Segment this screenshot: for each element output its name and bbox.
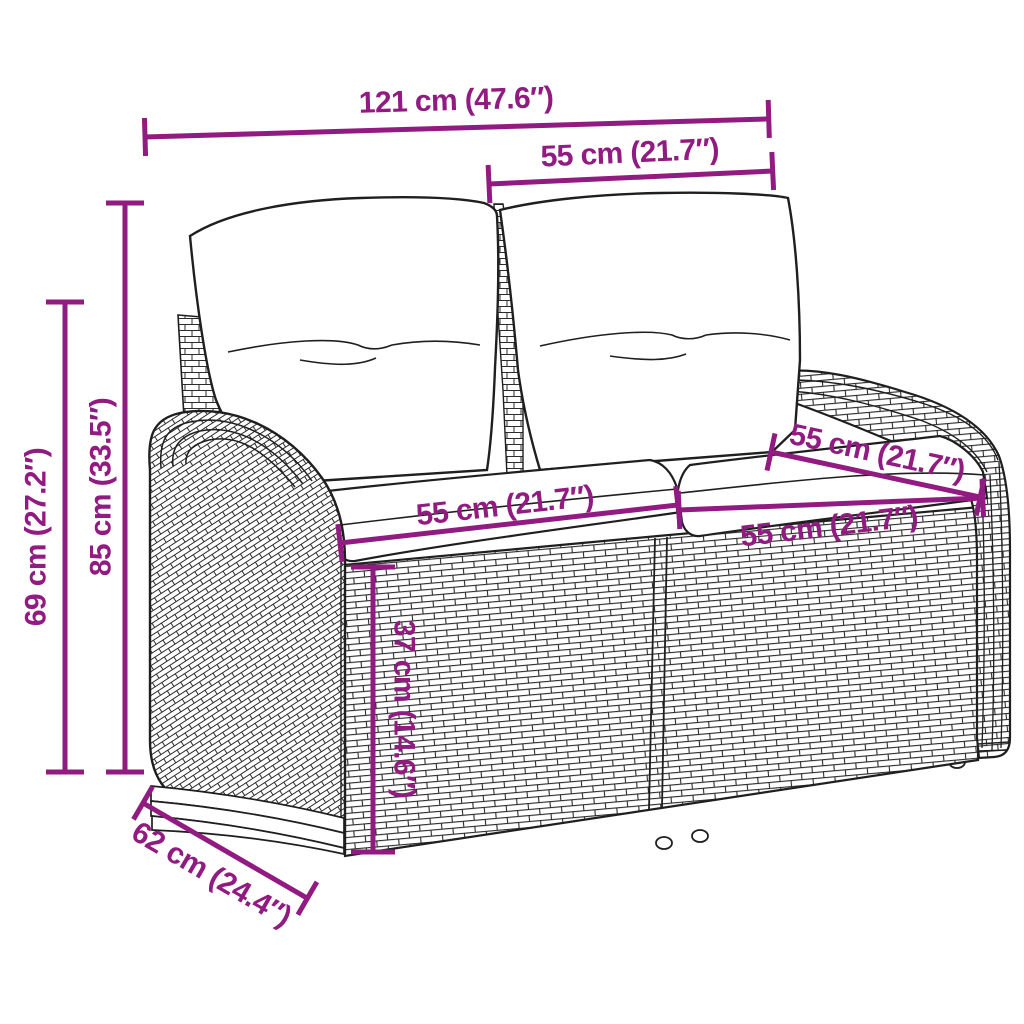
- product-dimension-diagram: 121 cm (47.6″) 55 cm (21.7″) 85 cm (33.5…: [0, 0, 1024, 1024]
- left-armrest: [149, 411, 345, 854]
- dim-label-overall-width: 121 cm (47.6″): [358, 81, 553, 120]
- dim-label-arm-height: 69 cm (27.2″): [20, 448, 53, 626]
- left-armrest-body: [149, 411, 345, 852]
- dim-label-total-height: 85 cm (33.5″): [85, 398, 118, 576]
- dim-label-backrest-width: 55 cm (21.7″): [540, 132, 720, 173]
- back-cushion-right: [500, 193, 800, 470]
- bench-base: [333, 507, 980, 856]
- dimension-diagram-canvas: 121 cm (47.6″) 55 cm (21.7″) 85 cm (33.5…: [0, 0, 1024, 1024]
- dim-label-seat-height: 37 cm (14.6″): [388, 620, 421, 798]
- dim-total-height: 85 cm (33.5″): [85, 203, 145, 772]
- base-front-panel: [333, 507, 980, 856]
- dim-arm-height: 69 cm (27.2″): [20, 302, 85, 772]
